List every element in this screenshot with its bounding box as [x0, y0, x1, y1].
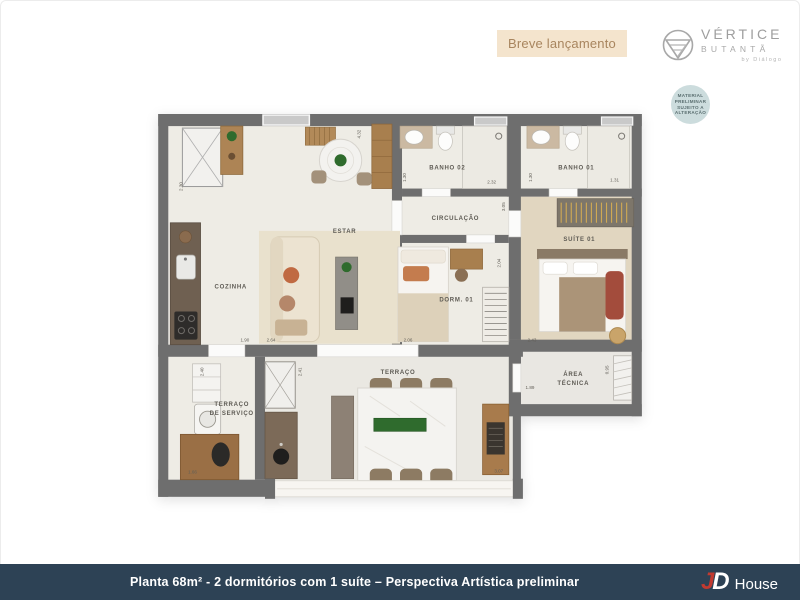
dimension-6: 3.05	[501, 202, 506, 211]
wardrobe	[483, 287, 509, 341]
bed-runner	[559, 277, 605, 331]
dimension-16: 1.89	[526, 385, 535, 390]
room-label-banho-02: BANHO 02	[429, 165, 465, 171]
dimension-4: 1.30	[528, 173, 533, 182]
pillow	[279, 295, 295, 311]
desk-chair	[455, 269, 468, 282]
room-label-terraco-servico: TERRAÇO	[214, 402, 249, 408]
toilet	[438, 132, 452, 150]
room-label-circulacao: CIRCULAÇÃO	[432, 215, 480, 222]
dimension-3: 2.32	[487, 180, 496, 185]
sink	[532, 130, 550, 144]
room-label-dorm-01: DORM. 01	[439, 297, 473, 303]
grill	[487, 422, 505, 454]
page: { "header": { "badge": "Breve lançamento…	[0, 0, 800, 600]
room-label-suite-01: SUÍTE 01	[563, 235, 595, 243]
jd-logo-icon: JD	[701, 568, 728, 596]
grill-divider	[265, 362, 297, 479]
launch-badge: Breve lançamento	[497, 30, 627, 57]
jd-house-text: House	[735, 576, 778, 593]
banho01-window	[601, 117, 632, 125]
bench	[331, 396, 353, 479]
vertice-logo: VÉRTICE BUTANTÃ by Diálogo	[660, 26, 782, 64]
room-label-terraco: TERRAÇO	[381, 370, 416, 376]
room-label-cozinha: COZINHA	[215, 284, 247, 290]
dimension-12: 2.40	[200, 367, 205, 376]
floor-plan-svg: ESTARCOZINHABANHO 02BANHO 01CIRCULAÇÃODO…	[158, 114, 642, 522]
shower	[462, 126, 506, 188]
pillow	[283, 267, 299, 283]
plant	[342, 262, 352, 272]
toilet	[565, 132, 579, 150]
dimension-5: 1.31	[610, 177, 619, 182]
dimension-0: 2.30	[178, 182, 183, 191]
plant	[227, 131, 237, 141]
dimension-17: 0.95	[605, 365, 610, 374]
technical-area	[614, 356, 632, 400]
banho02-window	[475, 117, 507, 125]
floor-plan: ESTARCOZINHABANHO 02BANHO 01CIRCULAÇÃODO…	[158, 114, 642, 522]
dimension-11: 2.43	[528, 338, 537, 343]
dimension-14: 1.66	[188, 470, 197, 475]
headboard	[537, 249, 628, 259]
brand-byline: by Diálogo	[701, 57, 782, 63]
dimension-10: 2.06	[404, 338, 413, 343]
railing	[265, 479, 523, 499]
dining-chair	[357, 172, 372, 185]
room-label-banho-01: BANHO 01	[558, 165, 594, 171]
room-label-area-tecnica: ÁREA	[563, 371, 583, 378]
cooktop	[174, 311, 197, 339]
plan-caption: Planta 68m² - 2 dormitórios com 1 suíte …	[130, 575, 579, 589]
laundry-sink	[212, 442, 230, 466]
pouf	[610, 328, 626, 344]
room-label-terraco-servico-2: DE SERVIÇO	[210, 411, 254, 417]
dimension-7: 2.04	[497, 258, 502, 267]
dimension-1: 4.32	[357, 129, 362, 138]
dining-chair	[311, 170, 326, 183]
table-plant	[335, 154, 347, 166]
prep-sink	[273, 448, 289, 464]
dimension-8: 1.90	[240, 338, 249, 343]
living-window	[263, 115, 309, 125]
cabinets	[192, 364, 220, 402]
dimension-9: 2.64	[267, 338, 276, 343]
jd-house-logo: JD House	[701, 568, 778, 596]
tv	[341, 297, 354, 313]
closet	[557, 199, 634, 227]
brand-sub: BUTANTÃ	[701, 44, 782, 54]
shower	[587, 126, 629, 188]
brand-name: VÉRTICE	[701, 26, 782, 42]
bed-pillow	[573, 262, 597, 274]
terrace-table	[358, 388, 457, 481]
dimension-15: 3.07	[494, 469, 503, 474]
bed-pillow	[543, 262, 567, 274]
footer-bar: Planta 68m² - 2 dormitórios com 1 suíte …	[0, 564, 800, 600]
bed-pillow	[401, 250, 445, 263]
dimension-13: 2.41	[297, 367, 302, 376]
table-runner	[374, 418, 426, 431]
vertice-logo-icon	[660, 28, 696, 64]
desk	[450, 249, 482, 269]
dimension-2: 1.30	[402, 173, 407, 182]
room-label-estar: ESTAR	[333, 229, 357, 235]
sink	[405, 130, 423, 144]
red-throw	[606, 271, 624, 319]
preliminary-material-badge: MATERIAL PRELIMINAR SUJEITO A ALTERAÇÃO	[671, 85, 710, 124]
room-label-area-tecnica-2: TÉCNICA	[557, 379, 589, 387]
